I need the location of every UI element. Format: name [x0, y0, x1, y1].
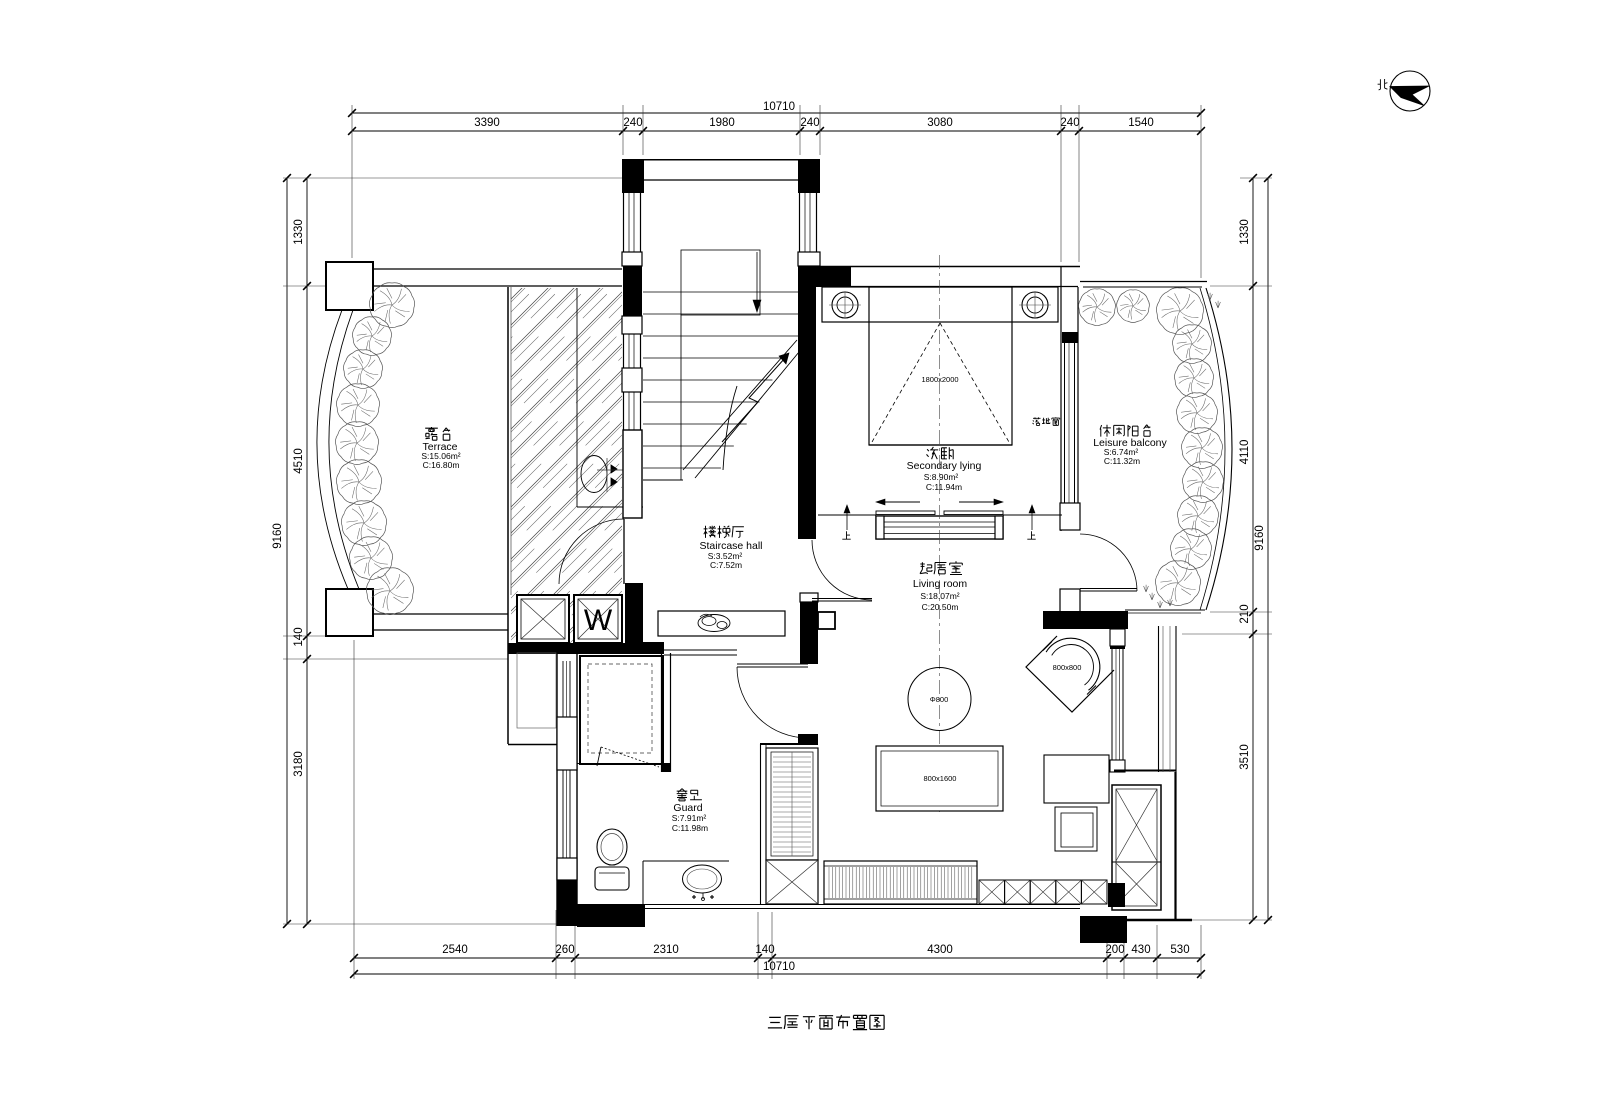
svg-text:Φ800: Φ800	[930, 695, 949, 704]
svg-text:C:11.94m: C:11.94m	[926, 482, 962, 492]
svg-text:1800x2000: 1800x2000	[921, 375, 958, 384]
svg-text:240: 240	[623, 117, 642, 129]
svg-text:2310: 2310	[653, 944, 679, 956]
svg-text:1980: 1980	[709, 117, 735, 129]
svg-text:1330: 1330	[1239, 219, 1251, 245]
svg-text:9160: 9160	[272, 523, 284, 549]
svg-text:3180: 3180	[293, 751, 305, 777]
svg-text:C:11.32m: C:11.32m	[1104, 456, 1140, 466]
svg-text:240: 240	[800, 117, 819, 129]
svg-text:530: 530	[1170, 944, 1189, 956]
svg-text:Living room: Living room	[913, 578, 968, 590]
svg-text:4110: 4110	[1239, 440, 1251, 465]
svg-text:S:18.07m²: S:18.07m²	[920, 591, 959, 601]
svg-text:3510: 3510	[1239, 744, 1251, 770]
svg-text:800x1600: 800x1600	[924, 774, 957, 783]
svg-text:800x800: 800x800	[1053, 663, 1082, 672]
svg-text:260: 260	[555, 944, 574, 956]
svg-text:W: W	[584, 604, 613, 637]
svg-text:200: 200	[1105, 944, 1124, 956]
svg-text:C:16.80m: C:16.80m	[423, 460, 460, 470]
svg-text:210: 210	[1239, 604, 1251, 623]
svg-text:1330: 1330	[293, 219, 305, 245]
svg-text:10710: 10710	[763, 101, 795, 113]
svg-text:430: 430	[1131, 944, 1150, 956]
svg-text:C:7.52m: C:7.52m	[710, 560, 742, 570]
svg-text:3390: 3390	[474, 117, 500, 129]
svg-text:4510: 4510	[293, 448, 305, 474]
svg-text:1540: 1540	[1128, 117, 1154, 129]
svg-text:240: 240	[1060, 117, 1079, 129]
svg-text:S:7.91m²: S:7.91m²	[672, 813, 707, 823]
svg-text:140: 140	[293, 627, 305, 646]
svg-text:C:11.98m: C:11.98m	[672, 823, 708, 833]
svg-text:2540: 2540	[442, 944, 468, 956]
svg-text:4300: 4300	[927, 944, 953, 956]
svg-text:Secondary lying: Secondary lying	[907, 460, 982, 472]
svg-text:3080: 3080	[927, 117, 953, 129]
svg-text:S:8.90m²: S:8.90m²	[924, 472, 959, 482]
svg-text:C:20.50m: C:20.50m	[922, 602, 959, 612]
svg-text:9160: 9160	[1254, 525, 1266, 551]
svg-text:10710: 10710	[763, 961, 795, 973]
